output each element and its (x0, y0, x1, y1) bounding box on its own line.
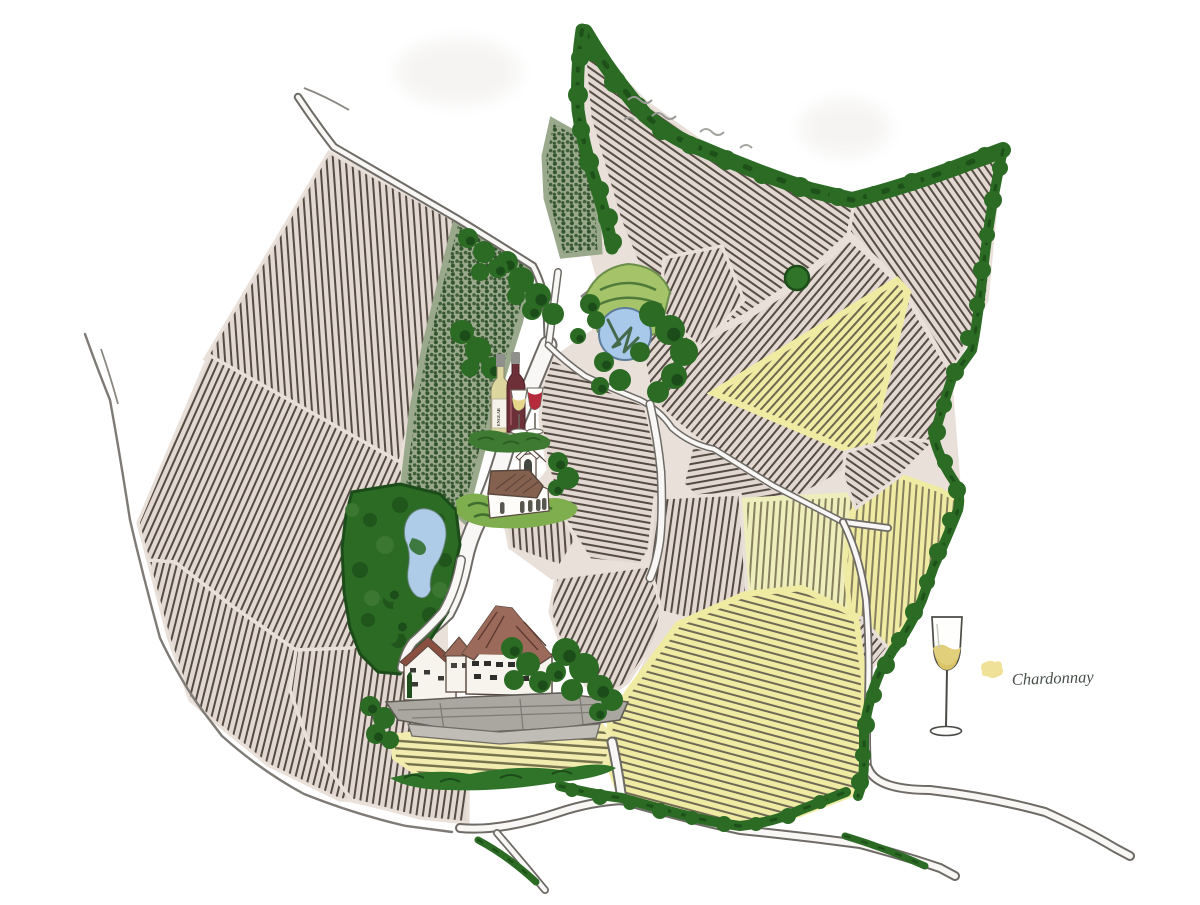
svg-text:Chardonnay: Chardonnay (1011, 667, 1094, 689)
svg-text:ENGLAR: ENGLAR (496, 407, 501, 426)
